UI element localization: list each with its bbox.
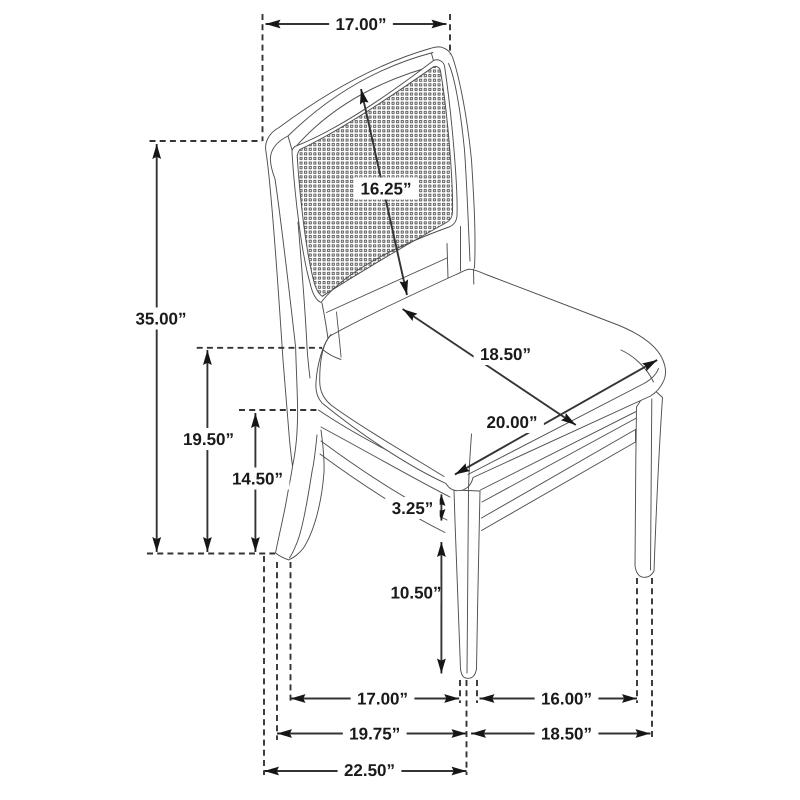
svg-text:22.50”: 22.50”: [344, 761, 395, 780]
svg-text:16.25”: 16.25”: [360, 180, 411, 199]
svg-text:18.50”: 18.50”: [480, 345, 531, 364]
svg-text:18.50”: 18.50”: [541, 725, 592, 744]
svg-text:17.00”: 17.00”: [357, 690, 408, 709]
svg-text:19.75”: 19.75”: [349, 725, 400, 744]
svg-text:14.50”: 14.50”: [232, 470, 283, 489]
svg-text:19.50”: 19.50”: [183, 430, 234, 449]
svg-text:17.00”: 17.00”: [335, 15, 386, 34]
svg-text:16.00”: 16.00”: [541, 690, 592, 709]
svg-text:20.00”: 20.00”: [486, 413, 537, 432]
svg-text:3.25”: 3.25”: [392, 499, 434, 518]
svg-text:10.50”: 10.50”: [390, 584, 441, 603]
svg-text:35.00”: 35.00”: [135, 310, 186, 329]
